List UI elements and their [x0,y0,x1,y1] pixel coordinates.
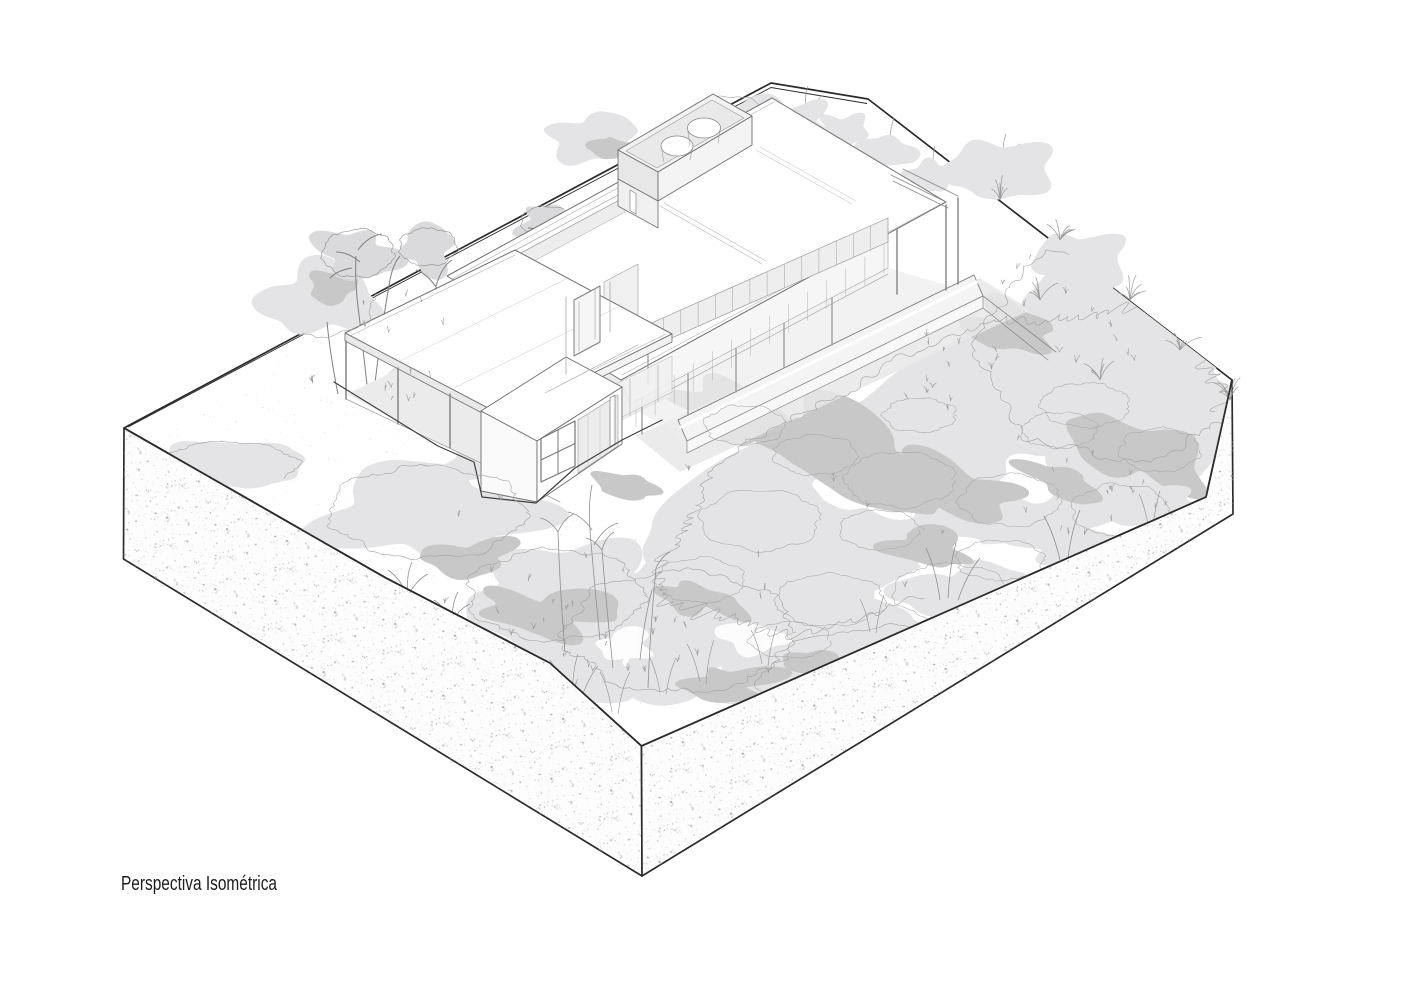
svg-text:Perspectiva Isométrica: Perspectiva Isométrica [121,873,278,895]
